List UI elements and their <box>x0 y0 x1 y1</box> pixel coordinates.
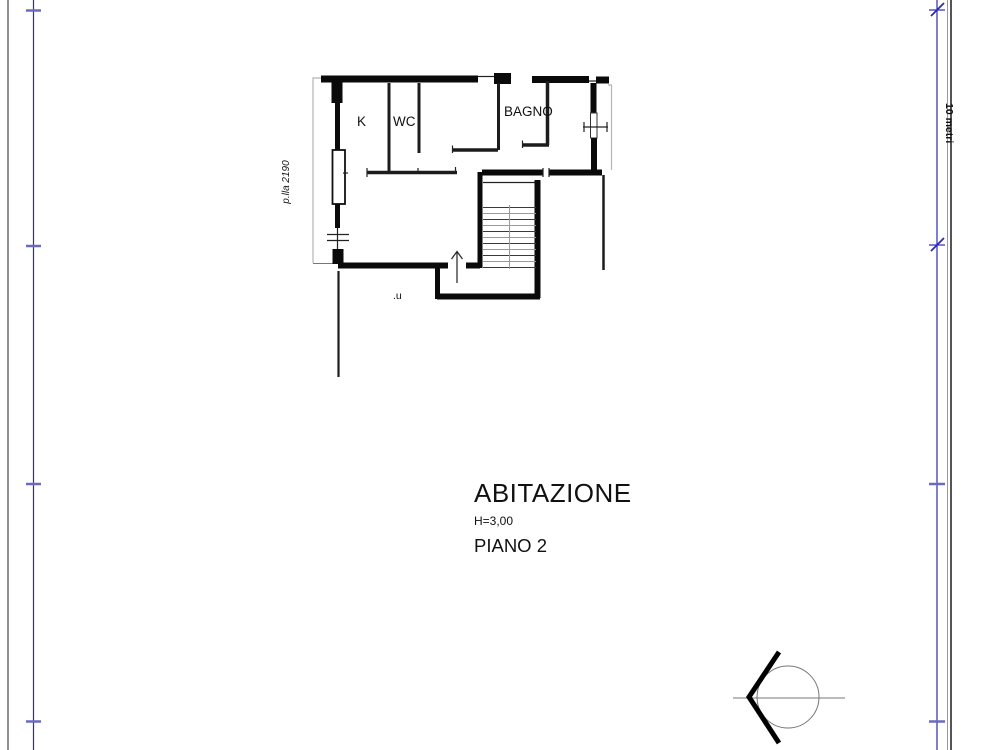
entry-arrow <box>452 252 463 284</box>
stairwell <box>437 172 540 299</box>
north-symbol <box>733 652 845 743</box>
plan-height-note: H=3,00 <box>474 514 513 528</box>
title-block: ABITAZIONE H=3,00 PIANO 2 <box>474 478 632 556</box>
entry-label: .u <box>393 290 402 302</box>
plan-floor-label: PIANO 2 <box>474 535 547 556</box>
stair-treads <box>483 205 536 269</box>
scale-label: 10 metri <box>943 103 955 143</box>
left-dimension-line <box>26 0 41 750</box>
sheet-frame <box>8 0 951 750</box>
room-label-wc: WC <box>393 114 416 129</box>
floorplan-sheet: 10 metri <box>0 0 1000 750</box>
interior-partitions <box>367 81 549 177</box>
parcel-label: p.lla 2190 <box>281 160 292 205</box>
right-dimension-line <box>929 0 945 750</box>
room-label-kitchen: K <box>357 114 366 129</box>
plan-title: ABITAZIONE <box>474 478 632 508</box>
room-label-bathroom: BAGNO <box>504 104 553 119</box>
